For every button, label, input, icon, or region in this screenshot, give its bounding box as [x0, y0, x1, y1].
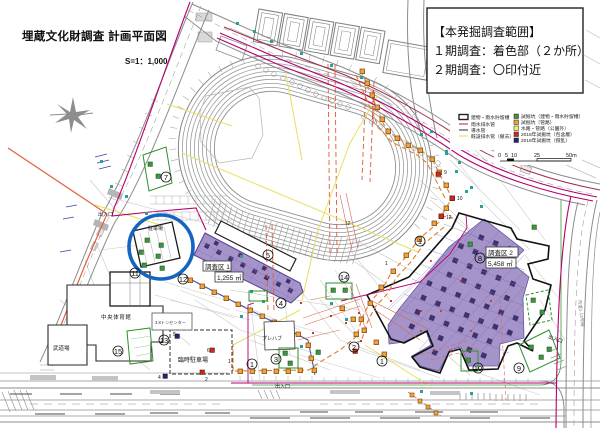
svg-text:8: 8: [478, 254, 482, 263]
svg-text:5: 5: [505, 153, 508, 159]
svg-text:0: 0: [498, 153, 501, 159]
svg-text:9: 9: [517, 364, 521, 373]
svg-text:1: 1: [385, 261, 388, 267]
svg-text:既設排水管（撤去）: 既設排水管（撤去）: [471, 133, 514, 140]
svg-text:1,255 ㎡: 1,255 ㎡: [217, 273, 242, 282]
svg-text:導水管: 導水管: [471, 127, 486, 134]
svg-text:水路・管路（公園外）: 水路・管路（公園外）: [521, 125, 569, 132]
svg-text:12: 12: [179, 275, 187, 284]
svg-text:2: 2: [205, 377, 208, 383]
svg-text:1: 1: [228, 359, 231, 365]
svg-text:プレハブ: プレハブ: [262, 335, 282, 342]
svg-text:臨時駐車場: 臨時駐車場: [178, 356, 208, 364]
svg-text:4: 4: [158, 375, 161, 381]
svg-text:１期調査：着色部（２か所）: １期調査：着色部（２か所）: [433, 43, 589, 58]
svg-text:出入口: 出入口: [98, 211, 113, 218]
svg-text:【本発掘調査範囲】: 【本発掘調査範囲】: [433, 24, 541, 39]
svg-text:2018年試掘坑（包含層）: 2018年試掘坑（包含層）: [521, 131, 575, 138]
svg-text:駐車場: 駐車場: [148, 225, 163, 232]
svg-text:10: 10: [511, 153, 517, 159]
svg-text:S=1：1,000: S=1：1,000: [125, 57, 168, 66]
svg-text:1: 1: [418, 237, 422, 246]
svg-text:7: 7: [164, 173, 168, 182]
svg-text:9: 9: [444, 170, 447, 176]
svg-text:10: 10: [457, 196, 463, 202]
svg-text:調査区 2: 調査区 2: [488, 248, 513, 257]
svg-text:7: 7: [357, 341, 360, 347]
svg-text:２期調査：〇印付近: ２期調査：〇印付近: [433, 63, 541, 77]
svg-text:15: 15: [114, 347, 122, 356]
svg-text:出入口: 出入口: [275, 383, 290, 390]
svg-text:調査区 1: 調査区 1: [205, 262, 230, 271]
svg-text:50m: 50m: [566, 153, 577, 159]
svg-text:雨水排水管: 雨水排水管: [471, 121, 495, 128]
svg-text:3: 3: [274, 355, 278, 364]
svg-text:13: 13: [160, 336, 168, 345]
svg-text:5,458 ㎡: 5,458 ㎡: [488, 259, 513, 268]
svg-text:14: 14: [340, 273, 348, 282]
svg-text:埋蔵文化財調査 計画平面図: 埋蔵文化財調査 計画平面図: [22, 29, 167, 43]
svg-text:2: 2: [352, 343, 356, 352]
svg-text:4: 4: [279, 299, 283, 308]
svg-text:建物・雨水貯留槽: 建物・雨水貯留槽: [471, 114, 510, 121]
svg-text:1: 1: [250, 360, 254, 369]
svg-text:10: 10: [474, 364, 482, 373]
svg-text:2018年試掘坑（撹乱）: 2018年試掘坑（撹乱）: [521, 137, 570, 144]
svg-text:6: 6: [207, 348, 210, 354]
svg-text:5: 5: [266, 251, 270, 260]
svg-text:25: 25: [534, 153, 540, 159]
svg-text:中央体育館: 中央体育館: [101, 313, 132, 321]
svg-text:3.8トンセンター: 3.8トンセンター: [155, 319, 186, 326]
svg-text:武道場: 武道場: [53, 344, 70, 352]
svg-text:11: 11: [131, 269, 139, 278]
svg-text:試掘坑（建物・雨水貯留槽）: 試掘坑（建物・雨水貯留槽）: [521, 113, 583, 120]
svg-text:1: 1: [380, 357, 384, 366]
svg-text:12: 12: [446, 215, 452, 221]
svg-text:試掘坑（管路）: 試掘坑（管路）: [521, 119, 555, 126]
